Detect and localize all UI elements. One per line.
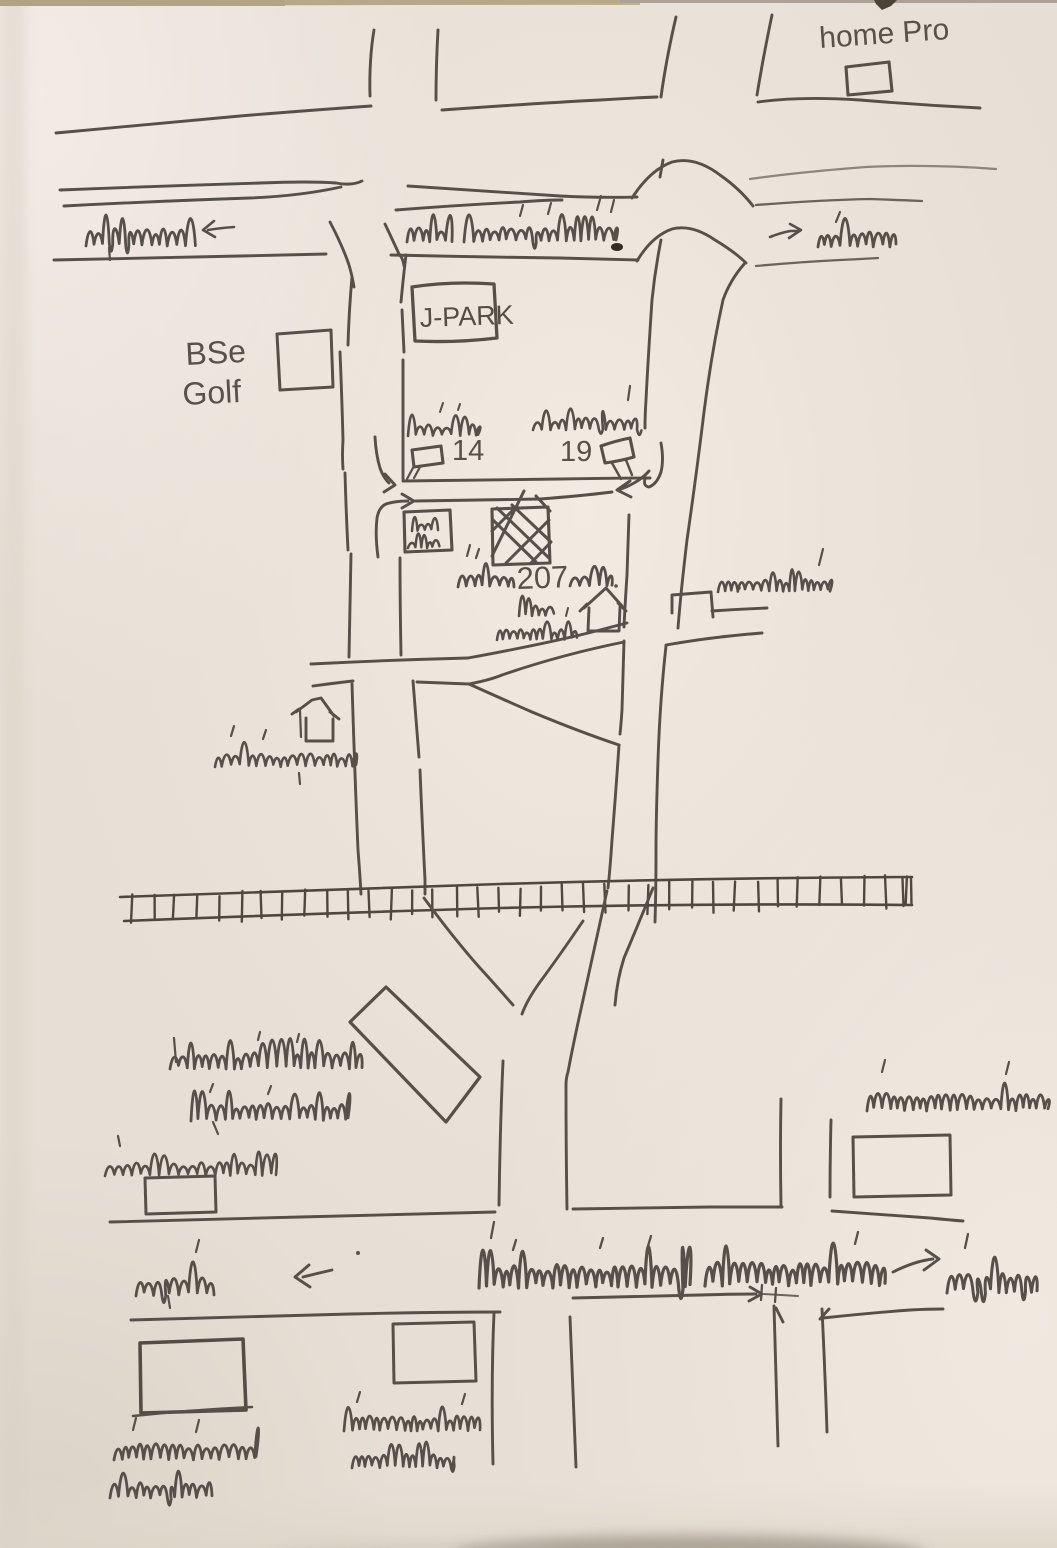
- svg-text:Golf: Golf: [181, 373, 242, 412]
- svg-text:14: 14: [452, 435, 484, 467]
- svg-text:207: 207: [516, 559, 569, 596]
- svg-text:J-PARK: J-PARK: [419, 300, 514, 333]
- svg-text:19: 19: [560, 436, 592, 468]
- svg-text:BSe: BSe: [184, 333, 246, 372]
